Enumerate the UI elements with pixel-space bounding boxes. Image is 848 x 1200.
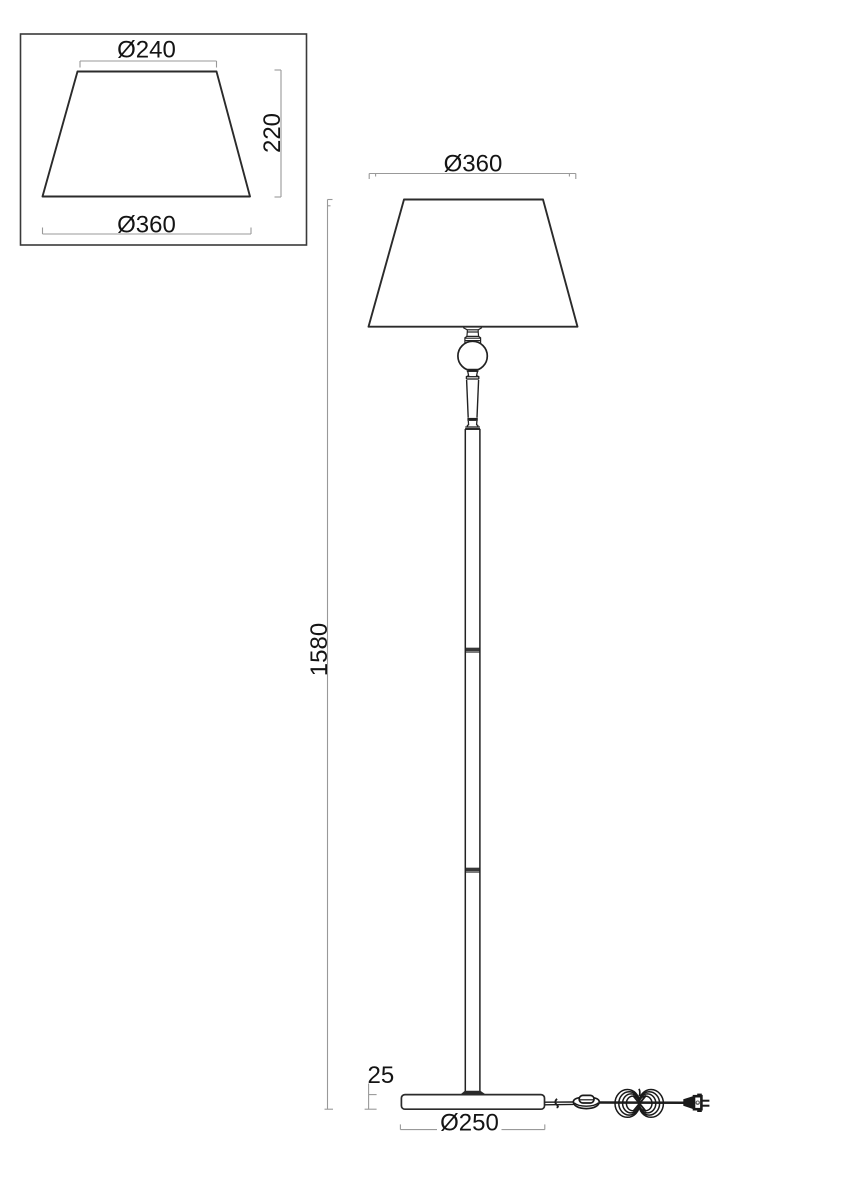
svg-text:Ø250: Ø250	[440, 1110, 499, 1137]
svg-text:Ø360: Ø360	[444, 151, 503, 178]
svg-text:220: 220	[259, 113, 286, 153]
svg-text:1580: 1580	[306, 623, 333, 676]
svg-text:25: 25	[368, 1062, 395, 1089]
svg-text:Ø240: Ø240	[117, 37, 176, 64]
svg-text:Ø360: Ø360	[117, 212, 176, 239]
